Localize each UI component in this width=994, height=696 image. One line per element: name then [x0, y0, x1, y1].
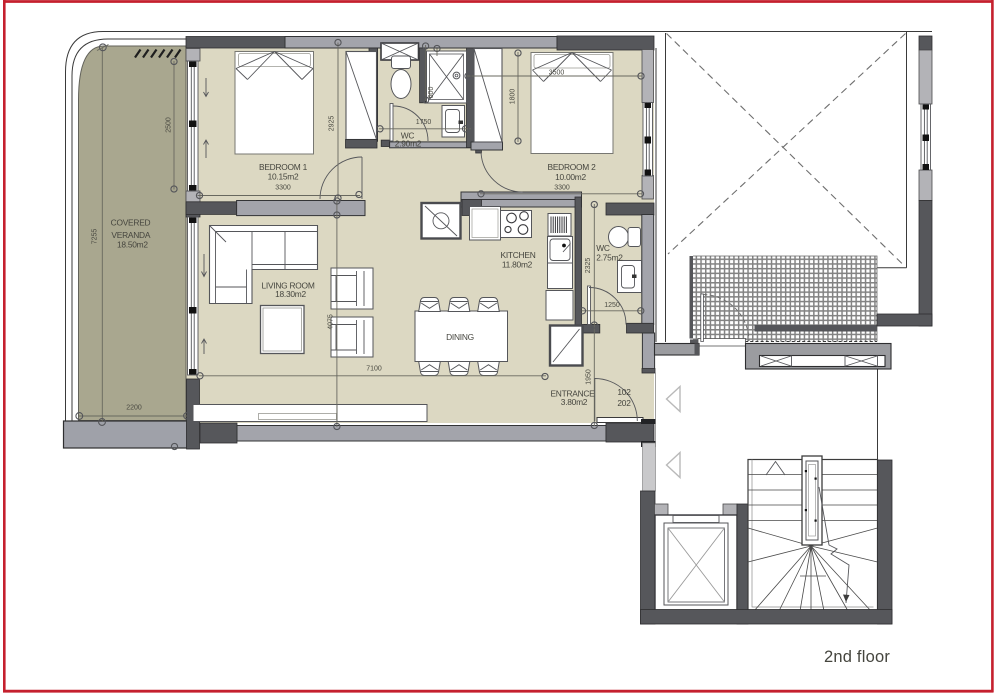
svg-text:1750: 1750 [416, 119, 432, 126]
svg-text:1950: 1950 [586, 369, 593, 385]
svg-text:7255: 7255 [92, 229, 99, 245]
svg-text:1250: 1250 [604, 302, 620, 309]
svg-text:WC: WC [596, 243, 610, 253]
svg-text:18.30m2: 18.30m2 [275, 289, 306, 299]
svg-text:2500: 2500 [166, 117, 173, 133]
svg-text:10.15m2: 10.15m2 [268, 172, 299, 182]
svg-text:2.75m2: 2.75m2 [596, 253, 623, 263]
svg-text:4075: 4075 [328, 314, 335, 330]
svg-text:BEDROOM 1: BEDROOM 1 [259, 162, 308, 172]
svg-text:18.50m2: 18.50m2 [117, 240, 148, 250]
svg-text:10.00m2: 10.00m2 [555, 172, 586, 182]
svg-text:3300: 3300 [554, 185, 570, 192]
svg-text:600: 600 [428, 87, 435, 99]
svg-text:2nd floor: 2nd floor [824, 648, 890, 666]
svg-text:102: 102 [617, 387, 631, 397]
svg-text:3300: 3300 [275, 185, 291, 192]
svg-text:11.80m2: 11.80m2 [502, 260, 533, 270]
svg-text:VERANDA: VERANDA [111, 230, 150, 240]
svg-text:2325: 2325 [585, 258, 592, 274]
svg-text:202: 202 [617, 398, 631, 408]
svg-text:7100: 7100 [366, 366, 382, 373]
svg-text:2925: 2925 [329, 116, 336, 132]
svg-text:3500: 3500 [549, 70, 565, 77]
svg-text:2200: 2200 [126, 405, 142, 412]
svg-text:COVERED: COVERED [111, 218, 151, 228]
svg-text:1800: 1800 [510, 89, 517, 105]
svg-text:DINING: DINING [446, 332, 474, 342]
svg-text:2.90m2: 2.90m2 [395, 139, 422, 149]
svg-text:BEDROOM 2: BEDROOM 2 [547, 162, 596, 172]
svg-text:3.80m2: 3.80m2 [561, 397, 588, 407]
svg-text:KITCHEN: KITCHEN [500, 250, 535, 260]
